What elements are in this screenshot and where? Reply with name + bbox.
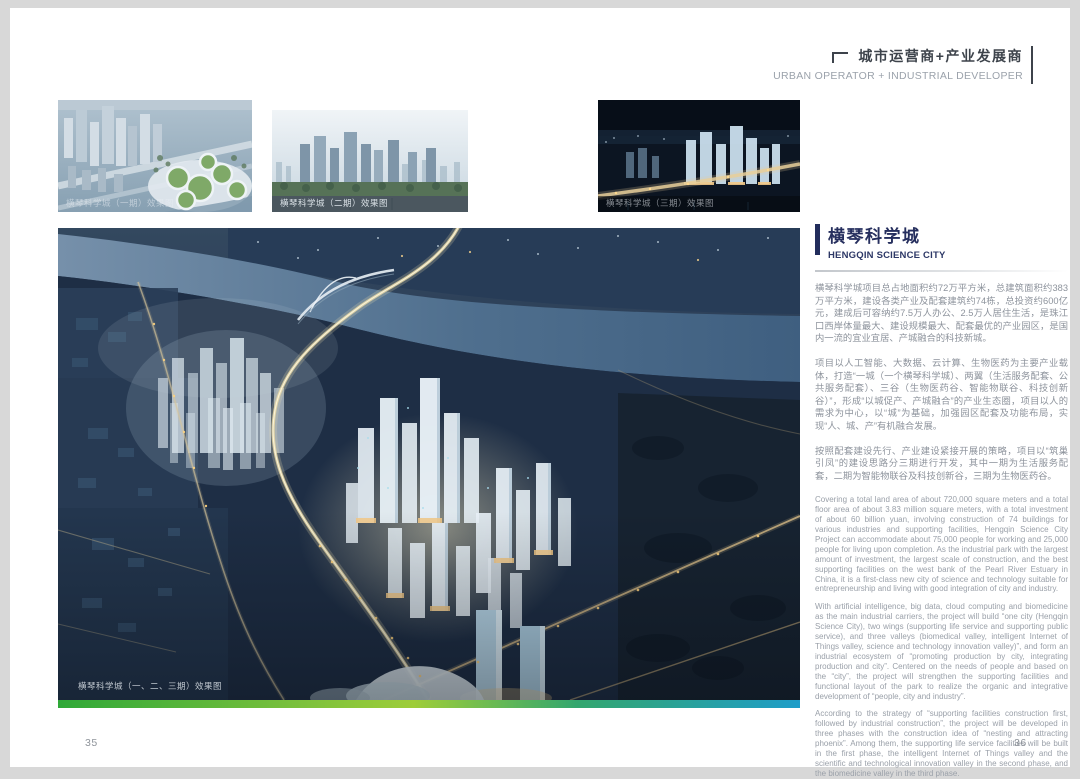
page-header: 城市运营商+产业发展商 URBAN OPERATOR + INDUSTRIAL … xyxy=(773,46,1023,82)
thumbnail-phase3-caption: 横琴科学城（三期）效果图 xyxy=(606,197,714,209)
title-divider-line xyxy=(815,270,1068,272)
phase1-render-image xyxy=(58,100,252,212)
paragraph-en-3: According to the strategy of “supporting… xyxy=(815,709,1068,778)
paragraph-cn-3: 按照配套建设先行、产业建设紧接开展的策略，项目以“筑巢引凤”的建设思路分三期进行… xyxy=(815,445,1068,483)
thumbnail-phase2: 横琴科学城（二期）效果图 xyxy=(272,110,468,212)
main-render-caption: 横琴科学城（一、二、三期）效果图 xyxy=(78,680,222,692)
thumbnail-phase2-caption: 横琴科学城（二期）效果图 xyxy=(280,197,388,209)
thumbnail-phase1: 横琴科学城（一期）效果图 xyxy=(58,100,252,212)
corner-bracket-icon xyxy=(832,52,848,63)
header-title-row: 城市运营商+产业发展商 xyxy=(773,46,1023,66)
article-title-cn: 横琴科学城 xyxy=(828,222,1068,247)
thumbnail-phase1-caption: 横琴科学城（一期）效果图 xyxy=(66,197,174,209)
english-text-block: Covering a total land area of about 720,… xyxy=(815,495,1068,778)
article-column: 横琴科学城 HENGQIN SCIENCE CITY 横琴科学城项目总占地面积约… xyxy=(815,222,1068,779)
thumbnail-phase3: 横琴科学城（三期）效果图 xyxy=(598,100,800,212)
main-render-figure: 横琴科学城（一、二、三期）效果图 xyxy=(58,228,800,708)
header-vertical-divider xyxy=(1031,46,1033,84)
header-title-en: URBAN OPERATOR + INDUSTRIAL DEVELOPER xyxy=(773,70,1023,82)
page-number-right: 36 xyxy=(1014,737,1027,749)
paragraph-cn-2: 项目以人工智能、大数据、云计算、生物医药为主要产业载体，打造“一城（一个横琴科学… xyxy=(815,357,1068,433)
paragraph-en-2: With artificial intelligence, big data, … xyxy=(815,602,1068,701)
title-accent-bar xyxy=(815,224,820,255)
article-title-en: HENGQIN SCIENCE CITY xyxy=(828,250,1068,261)
paragraph-en-1: Covering a total land area of about 720,… xyxy=(815,495,1068,594)
header-title-cn: 城市运营商+产业发展商 xyxy=(858,46,1023,66)
main-render-image xyxy=(58,228,800,700)
brochure-page-spread: 城市运营商+产业发展商 URBAN OPERATOR + INDUSTRIAL … xyxy=(10,8,1070,767)
page-number-left: 35 xyxy=(85,737,98,749)
green-gradient-strip xyxy=(58,700,800,708)
paragraph-cn-1: 横琴科学城项目总占地面积约72万平方米，总建筑面积约383万平方米，建设各类产业… xyxy=(815,282,1068,345)
article-title-block: 横琴科学城 HENGQIN SCIENCE CITY xyxy=(815,222,1068,261)
